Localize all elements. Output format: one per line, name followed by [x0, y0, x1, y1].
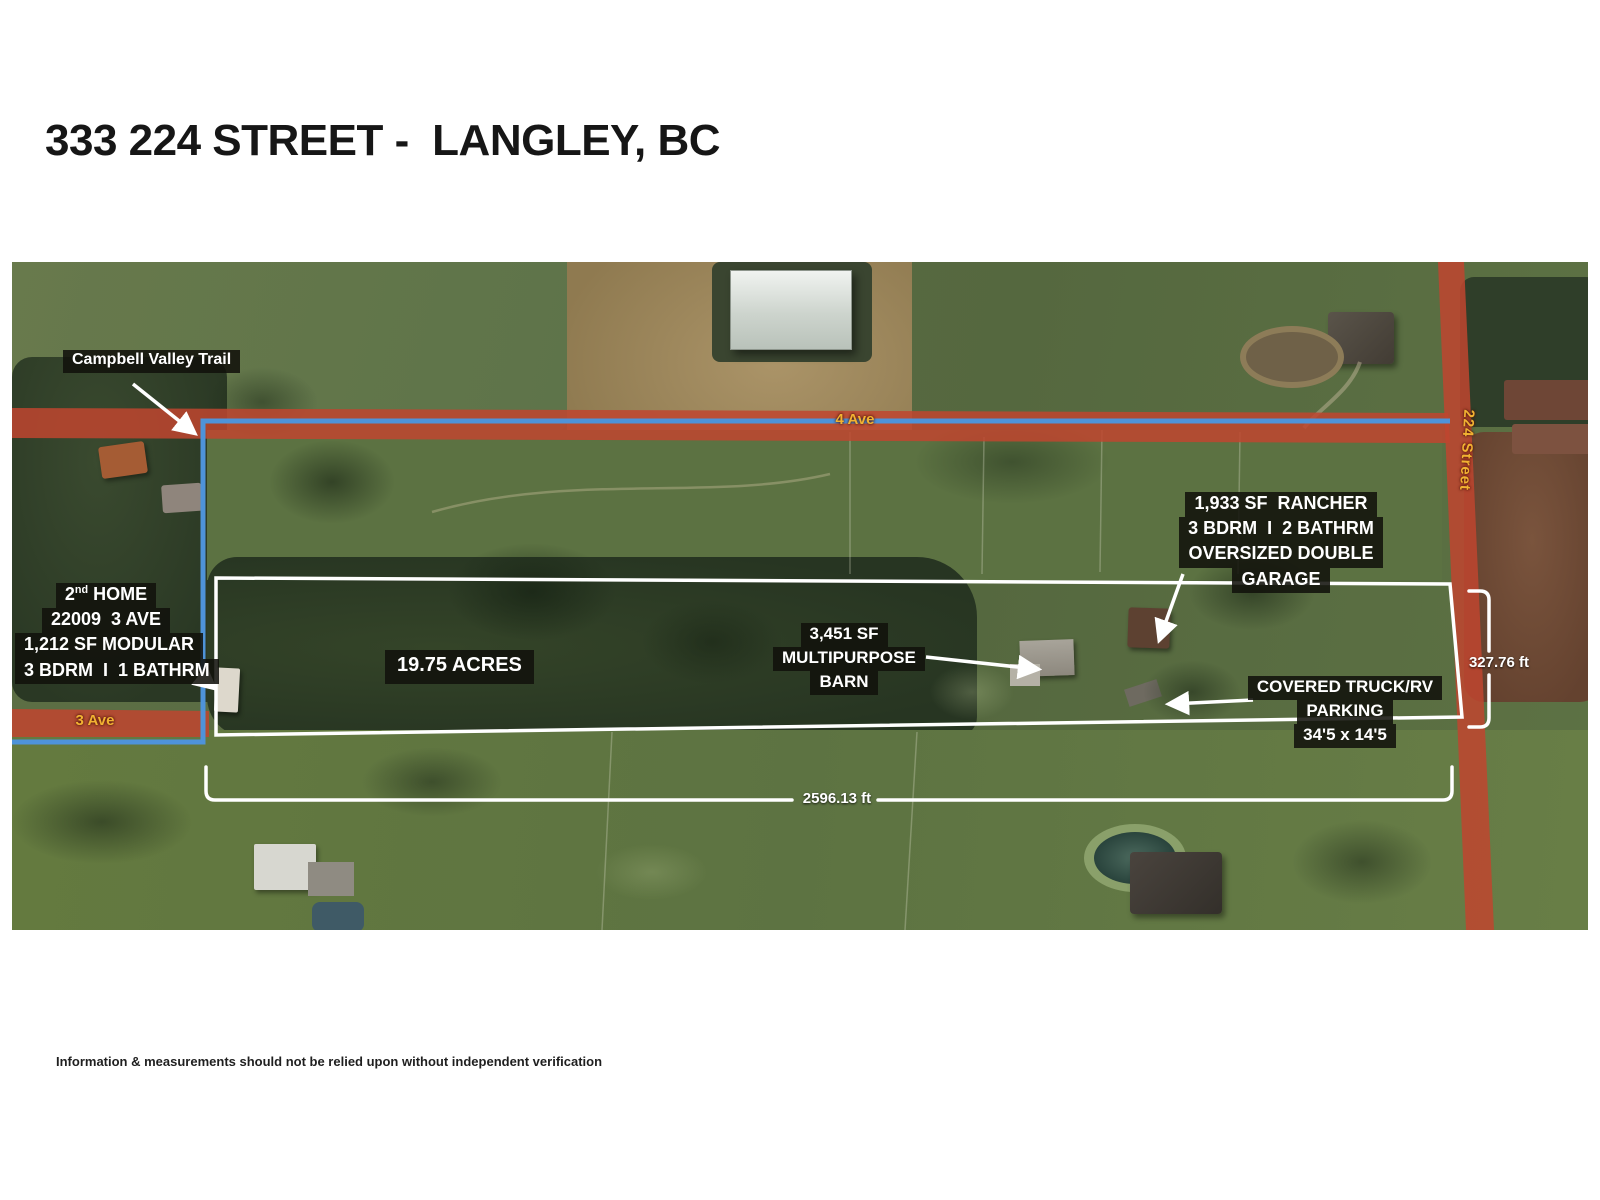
acreage-label: 19.75 ACRES [385, 650, 534, 684]
campbell-valley-trail-label: Campbell Valley Trail [63, 350, 240, 373]
second-home-label-line1: 2nd HOME [56, 583, 156, 608]
page-title: 333 224 STREET - LANGLEY, BC [45, 116, 720, 166]
parking-label-line2: PARKING [1297, 700, 1392, 724]
rancher-label-line4: GARAGE [1232, 568, 1329, 593]
parking-label-line1: COVERED TRUCK/RV [1248, 676, 1442, 700]
barn-arrow [926, 657, 1036, 669]
parking-label: COVERED TRUCK/RV PARKING 34'5 x 14'5 [1245, 676, 1445, 748]
second-home-label-line3: 1,212 SF MODULAR [15, 633, 203, 658]
barn-label-line1: 3,451 SF [801, 623, 888, 647]
rancher-label-line3: OVERSIZED DOUBLE [1179, 542, 1382, 567]
street-label-4-ave: 4 Ave [820, 411, 890, 428]
street-label-3-ave: 3 Ave [60, 712, 130, 729]
listing-page: 333 224 STREET - LANGLEY, BC [0, 0, 1600, 1200]
east-depth-measurement: 327.76 ft [1454, 654, 1544, 671]
second-home-label-line4: 3 BDRM I 1 BATHRM [15, 659, 219, 684]
road-4-ave [12, 408, 1450, 443]
aerial-map: Campbell Valley Trail 4 Ave 3 Ave 224 St… [12, 262, 1588, 930]
second-home-label-line2: 22009 3 AVE [42, 608, 170, 633]
south-frontage-measurement: 2596.13 ft [787, 790, 887, 807]
disclaimer-text: Information & measurements should not be… [56, 1054, 602, 1069]
rancher-label-line2: 3 BDRM I 2 BATHRM [1179, 517, 1383, 542]
road-224-street [1438, 262, 1494, 930]
barn-label-line2: MULTIPURPOSE [773, 647, 925, 671]
map-overlay-graphics [12, 262, 1588, 930]
rancher-label: 1,933 SF RANCHER 3 BDRM I 2 BATHRM OVERS… [1150, 492, 1412, 593]
second-home-label: 2nd HOME 22009 3 AVE 1,212 SF MODULAR 3 … [15, 583, 197, 684]
rancher-label-line1: 1,933 SF RANCHER [1185, 492, 1376, 517]
field-path [432, 474, 830, 512]
fence-lines [602, 430, 1240, 930]
parking-arrow [1171, 700, 1253, 704]
parking-label-line3: 34'5 x 14'5 [1294, 724, 1396, 748]
barn-label-line3: BARN [810, 671, 877, 695]
barn-label: 3,451 SF MULTIPURPOSE BARN [773, 623, 915, 695]
